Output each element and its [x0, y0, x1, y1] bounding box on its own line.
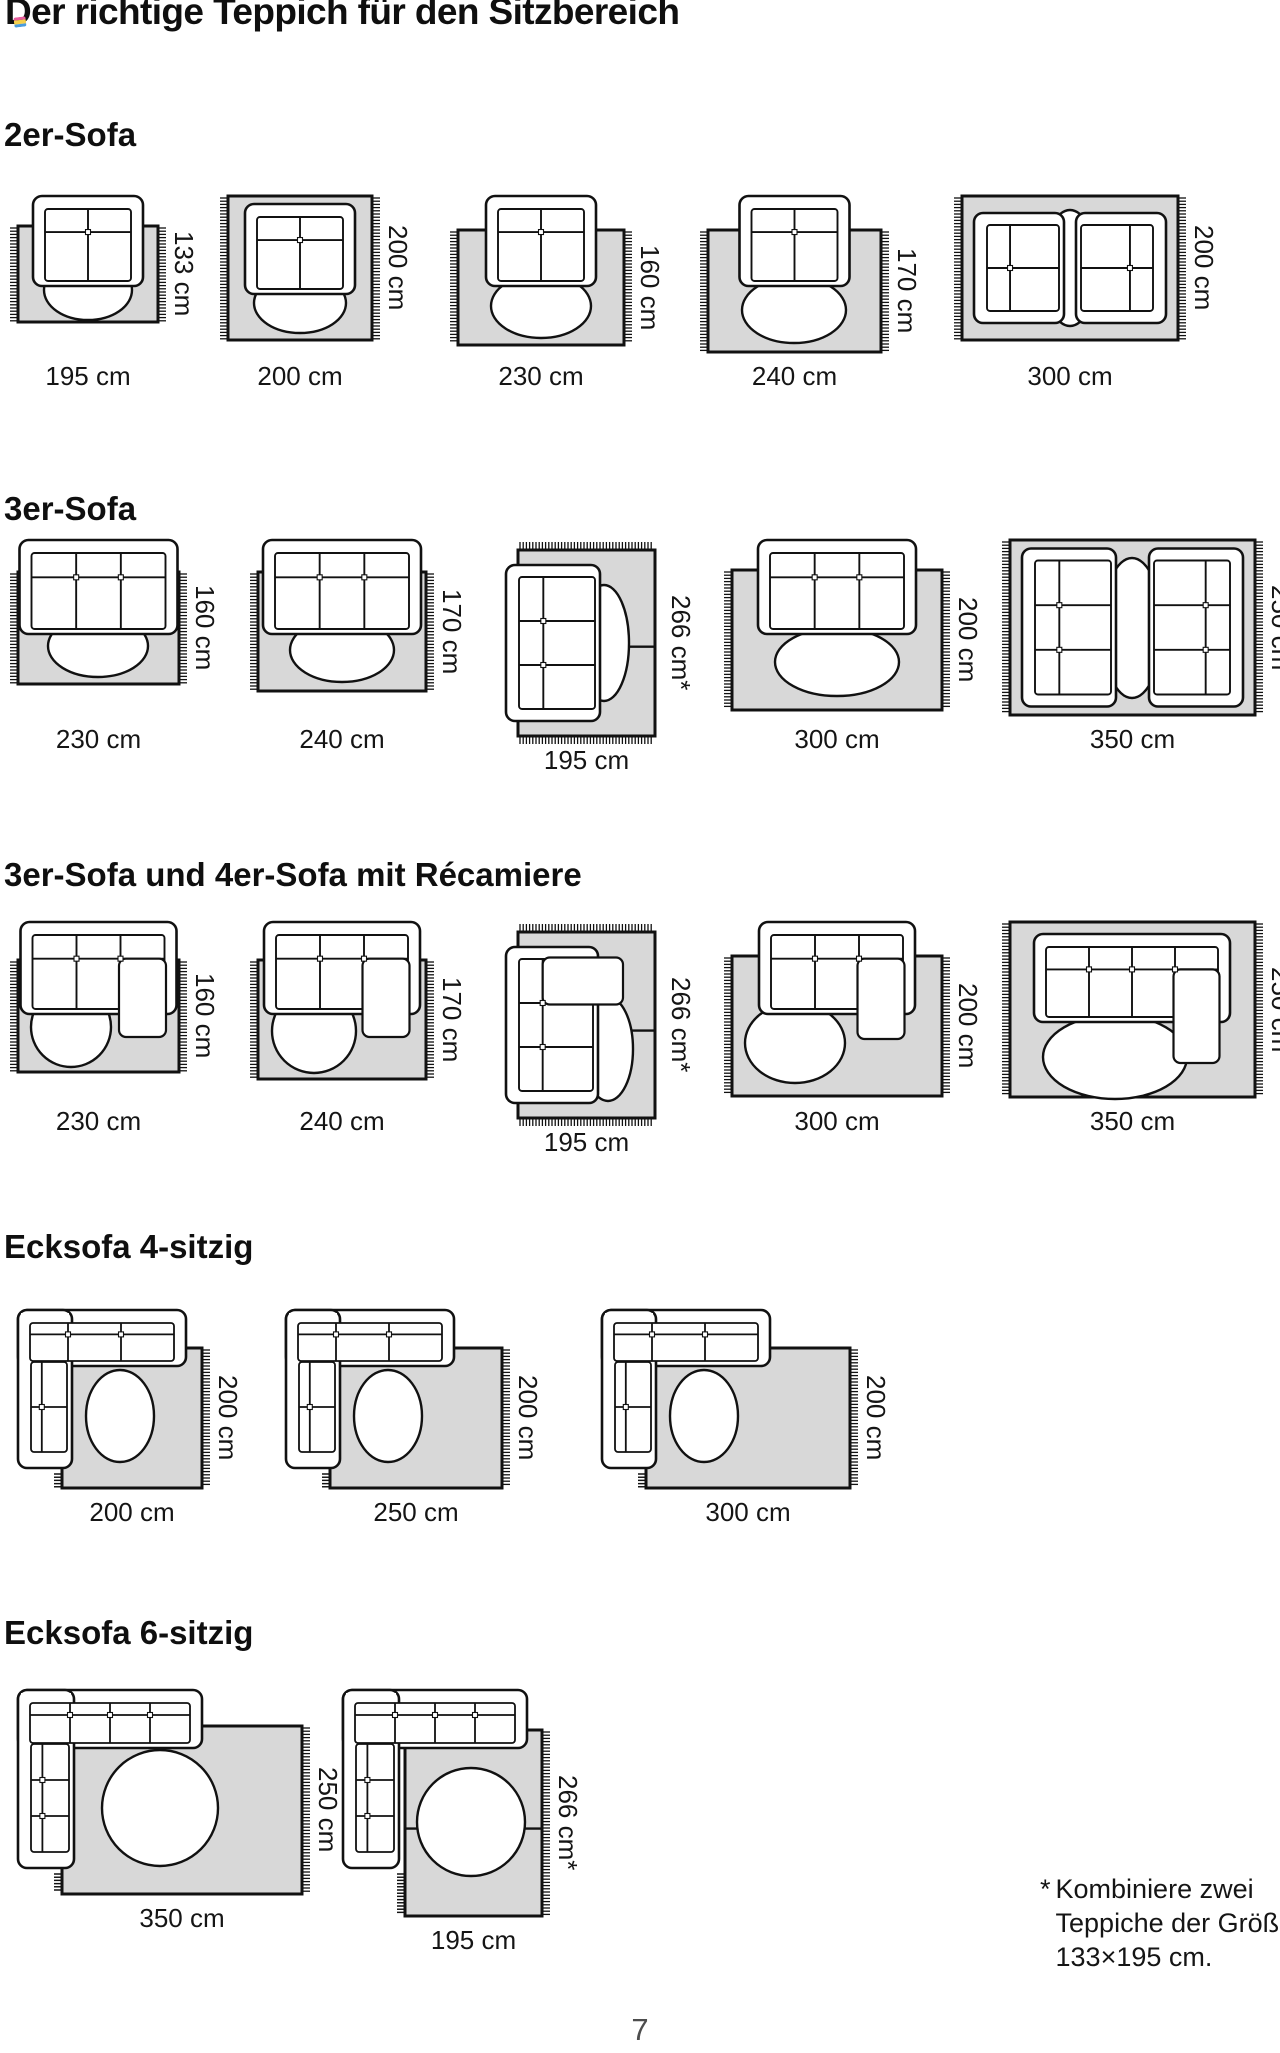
rug-size-diagram: 195 cm266 cm*	[333, 1690, 598, 1958]
sofa-top-view	[1022, 549, 1116, 707]
sofa-top-view	[758, 540, 916, 634]
section-heading: 3er-Sofa und 4er-Sofa mit Récamiere	[4, 856, 582, 894]
sofa-top-view	[486, 196, 596, 286]
rug-height-label: 200 cm	[1188, 196, 1219, 340]
rug-fringe	[625, 232, 632, 341]
rug-fringe	[203, 1350, 210, 1484]
rug-height-label: 250 cm	[1265, 540, 1280, 715]
rug-fringe	[250, 962, 257, 1077]
rug-size-diagram: 230 cm160 cm	[448, 196, 674, 387]
rug-fringe	[954, 198, 961, 339]
rug-height-label: 266 cm*	[552, 1730, 583, 1916]
rug-size-diagram: 200 cm200 cm	[8, 1310, 258, 1530]
rug-fringe	[427, 574, 434, 689]
rug-fringe	[450, 232, 457, 341]
rug-width-label: 350 cm	[1010, 1106, 1255, 1137]
sofa-rug-illustration	[276, 1310, 518, 1496]
sofa-top-view	[33, 196, 143, 286]
rug-width-label: 240 cm	[708, 361, 881, 392]
sofa-top-view	[1076, 213, 1166, 323]
rug-height-label: 266 cm*	[665, 550, 696, 736]
rug-size-diagram: 300 cm200 cm	[592, 1310, 906, 1530]
section-heading: 3er-Sofa	[4, 490, 136, 528]
rug-fringe	[373, 198, 380, 339]
page-number: 7	[0, 2012, 1280, 2048]
sofa-rug-illustration	[248, 540, 436, 699]
rug-height-label: 160 cm	[189, 960, 220, 1072]
rug-size-diagram: 230 cm160 cm	[8, 540, 229, 726]
sofa-rug-illustration	[218, 196, 382, 348]
rug-fringe	[520, 1119, 651, 1126]
footnote-marker: *	[1040, 1872, 1051, 1974]
rug-fringe	[1002, 542, 1009, 712]
rug-fringe	[943, 958, 950, 1092]
rug-fringe	[1256, 542, 1263, 712]
rug-width-label: 195 cm	[405, 1925, 542, 1956]
rug-height-label: 170 cm	[891, 230, 922, 352]
sofa-rug-illustration	[1000, 922, 1265, 1105]
rug-height-label: 200 cm	[212, 1348, 243, 1488]
rug-size-diagram: 200 cm200 cm	[218, 196, 422, 382]
rug-size-diagram: 195 cm133 cm	[8, 196, 208, 364]
rug-fringe	[1002, 924, 1009, 1094]
coffee-table	[670, 1370, 738, 1462]
rug-size-diagram: 195 cm266 cm*	[502, 922, 711, 1170]
rug-fringe	[503, 1350, 510, 1484]
sofa-rug-illustration	[1000, 540, 1265, 723]
rug-fringe	[882, 232, 889, 350]
sofa-rug-illustration	[8, 196, 168, 330]
sofa-top-view	[506, 565, 600, 721]
rug-width-label: 300 cm	[732, 1106, 942, 1137]
rug-width-label: 350 cm	[62, 1903, 302, 1934]
coffee-table	[775, 628, 899, 696]
rug-width-label: 240 cm	[258, 1106, 426, 1137]
rug-size-diagram: 240 cm170 cm	[248, 540, 476, 733]
rug-height-label: 160 cm	[634, 230, 665, 345]
catalog-page: Der richtige Teppich für den Sitzbereich…	[0, 0, 1280, 2053]
rug-width-label: 250 cm	[330, 1497, 502, 1528]
sofa-rug-illustration	[502, 540, 671, 754]
rug-height-label: 170 cm	[436, 960, 467, 1079]
sofa-rug-illustration	[502, 922, 671, 1136]
sofa-top-view	[245, 204, 355, 294]
rug-size-diagram: 350 cm250 cm	[1000, 540, 1280, 757]
coffee-table	[417, 1768, 525, 1876]
rug-height-label: 250 cm	[1265, 922, 1280, 1097]
rug-height-label: 200 cm	[952, 570, 983, 710]
sofa-rug-illustration	[8, 1690, 318, 1902]
rug-fringe	[700, 232, 707, 350]
sofa-rug-illustration	[8, 922, 189, 1080]
section-heading: Ecksofa 6-sitzig	[4, 1614, 253, 1652]
rug-width-label: 300 cm	[962, 361, 1178, 392]
footnote-text: Kombiniere zwei Teppiche der Größe 133×1…	[1056, 1872, 1280, 1974]
rug-height-label: 266 cm*	[665, 932, 696, 1118]
rug-width-label: 300 cm	[646, 1497, 850, 1528]
title-badge-icon	[13, 16, 26, 27]
rug-width-label: 300 cm	[732, 724, 942, 755]
rug-size-diagram: 350 cm250 cm	[1000, 922, 1280, 1139]
rug-size-diagram: 300 cm200 cm	[722, 922, 992, 1138]
rug-fringe	[427, 962, 434, 1077]
page-title: Der richtige Teppich für den Sitzbereich	[5, 0, 679, 33]
rug-width-label: 195 cm	[518, 1127, 655, 1158]
rug-height-label: 200 cm	[952, 956, 983, 1096]
rug-height-label: 200 cm	[860, 1348, 891, 1488]
rug-fringe	[10, 962, 17, 1071]
sofa-rug-illustration	[592, 1310, 866, 1496]
section-heading: 2er-Sofa	[4, 116, 136, 154]
sofa-rug-illustration	[722, 540, 952, 718]
rug-width-label: 195 cm	[518, 745, 655, 776]
section-heading: Ecksofa 4-sitzig	[4, 1228, 253, 1266]
rug-fringe	[159, 228, 166, 321]
rug-fringe	[520, 542, 651, 549]
rug-fringe	[638, 1474, 645, 1487]
sofa-top-view	[1149, 549, 1243, 707]
sofa-rug-illustration	[698, 196, 891, 360]
rug-fringe	[943, 572, 950, 706]
rug-height-label: 200 cm	[382, 196, 413, 340]
rug-fringe	[724, 572, 731, 706]
rug-fringe	[180, 962, 187, 1071]
rug-fringe	[851, 1350, 858, 1484]
rug-fringe	[543, 1732, 550, 1914]
rug-width-label: 200 cm	[62, 1497, 202, 1528]
sofa-rug-illustration	[8, 1310, 218, 1496]
rug-width-label: 200 cm	[228, 361, 372, 392]
coffee-table	[86, 1370, 154, 1462]
rug-fringe	[520, 737, 651, 744]
rug-fringe	[303, 1728, 310, 1891]
rug-fringe	[322, 1474, 329, 1487]
rug-fringe	[54, 1474, 61, 1487]
sofa-rug-illustration	[448, 196, 634, 353]
rug-size-diagram: 230 cm160 cm	[8, 922, 229, 1114]
rug-height-label: 133 cm	[168, 226, 199, 322]
rug-fringe	[54, 1874, 61, 1890]
sofa-top-view	[263, 540, 421, 634]
sofa-rug-illustration	[8, 540, 189, 692]
coffee-table	[102, 1750, 218, 1866]
rug-size-diagram: 300 cm200 cm	[952, 196, 1228, 382]
rug-fringe	[180, 574, 187, 683]
sofa-top-view	[740, 196, 850, 286]
rug-width-label: 230 cm	[18, 1106, 179, 1137]
rug-height-label: 170 cm	[436, 572, 467, 691]
rug-fringe	[220, 198, 227, 339]
sofa-rug-illustration	[333, 1690, 558, 1924]
sofa-rug-illustration	[248, 922, 436, 1087]
sofa-top-view	[20, 540, 178, 634]
sofa-top-view	[974, 213, 1064, 323]
rug-size-diagram: 240 cm170 cm	[698, 196, 931, 394]
rug-size-diagram: 240 cm170 cm	[248, 922, 476, 1121]
rug-fringe	[1256, 924, 1263, 1094]
rug-fringe	[10, 228, 17, 321]
rug-width-label: 230 cm	[458, 361, 624, 392]
rug-fringe	[10, 574, 17, 683]
sofa-rug-illustration	[952, 196, 1188, 348]
rug-fringe	[250, 574, 257, 689]
coffee-table	[354, 1370, 422, 1462]
footnote: * Kombiniere zwei Teppiche der Größe 133…	[1040, 1872, 1280, 1974]
rug-size-diagram: 350 cm250 cm	[8, 1690, 358, 1936]
rug-height-label: 160 cm	[189, 572, 220, 684]
rug-fringe	[1179, 198, 1186, 339]
rug-width-label: 230 cm	[18, 724, 179, 755]
rug-fringe	[397, 1874, 404, 1912]
rug-width-label: 350 cm	[1010, 724, 1255, 755]
rug-size-diagram: 250 cm200 cm	[276, 1310, 558, 1530]
rug-height-label: 200 cm	[512, 1348, 543, 1488]
rug-size-diagram: 300 cm200 cm	[722, 540, 992, 752]
sofa-rug-illustration	[722, 922, 952, 1104]
rug-fringe	[54, 1874, 61, 1890]
rug-size-diagram: 195 cm266 cm*	[502, 540, 711, 788]
coffee-table	[1043, 1015, 1187, 1099]
rug-width-label: 195 cm	[18, 361, 158, 392]
rug-fringe	[724, 958, 731, 1092]
rug-fringe	[520, 924, 651, 931]
rug-width-label: 240 cm	[258, 724, 426, 755]
